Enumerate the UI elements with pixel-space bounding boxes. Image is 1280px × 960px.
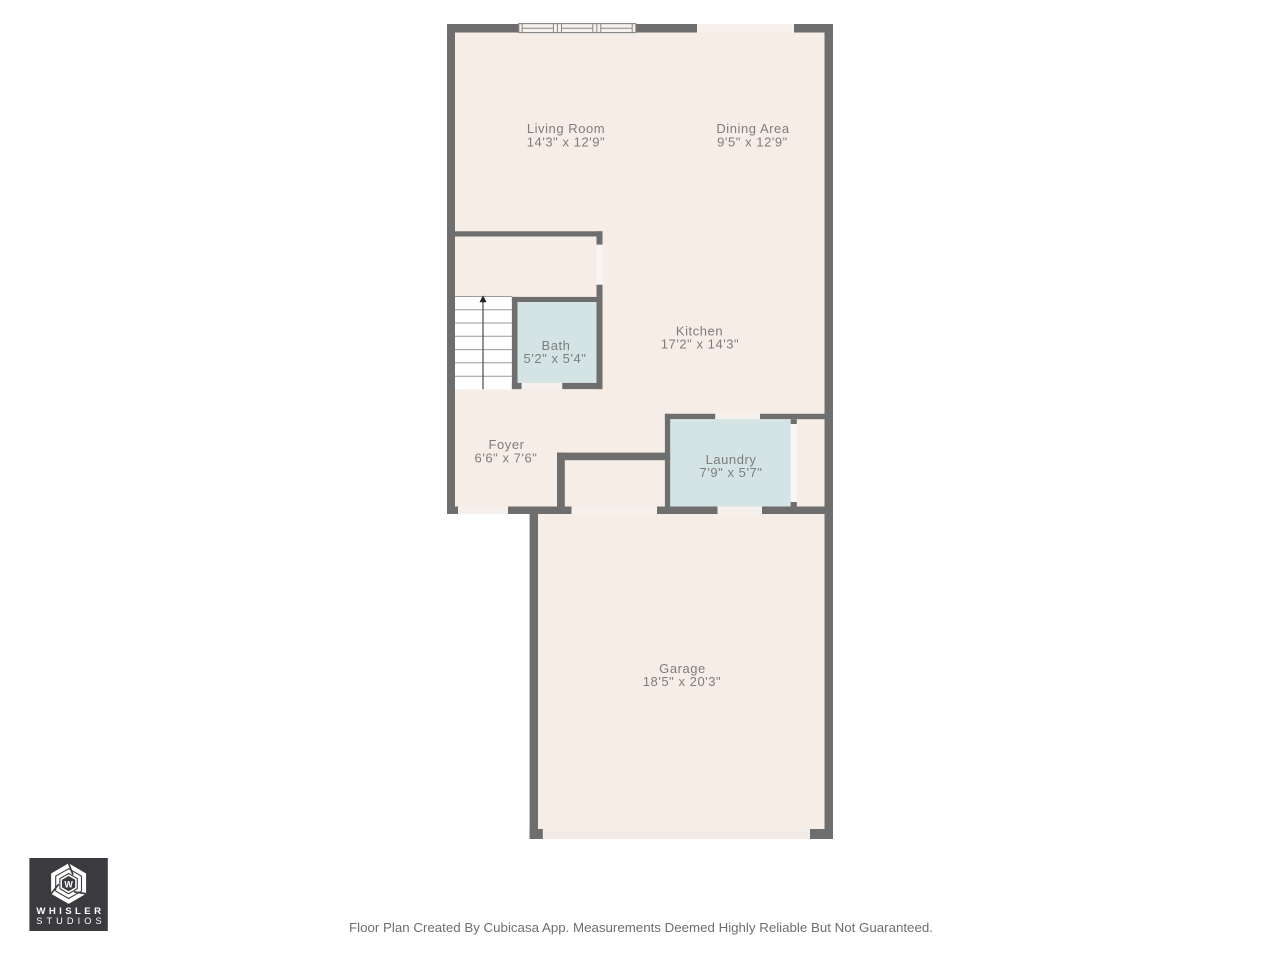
svg-text:6'6" x 7'6": 6'6" x 7'6": [475, 451, 538, 466]
svg-text:18'5" x 20'3": 18'5" x 20'3": [643, 674, 721, 689]
svg-text:5'2" x 5'4": 5'2" x 5'4": [524, 351, 587, 366]
svg-text:STUDIOS: STUDIOS: [36, 916, 106, 926]
svg-text:17'2" x 14'3": 17'2" x 14'3": [661, 337, 739, 352]
svg-text:7'9" x 5'7": 7'9" x 5'7": [700, 465, 763, 480]
svg-text:14'3" x 12'9": 14'3" x 12'9": [527, 135, 605, 150]
svg-text:Floor Plan Created By Cubicasa: Floor Plan Created By Cubicasa App. Meas…: [349, 920, 933, 935]
svg-text:W: W: [64, 880, 73, 890]
svg-text:9'5" x 12'9": 9'5" x 12'9": [717, 135, 788, 150]
